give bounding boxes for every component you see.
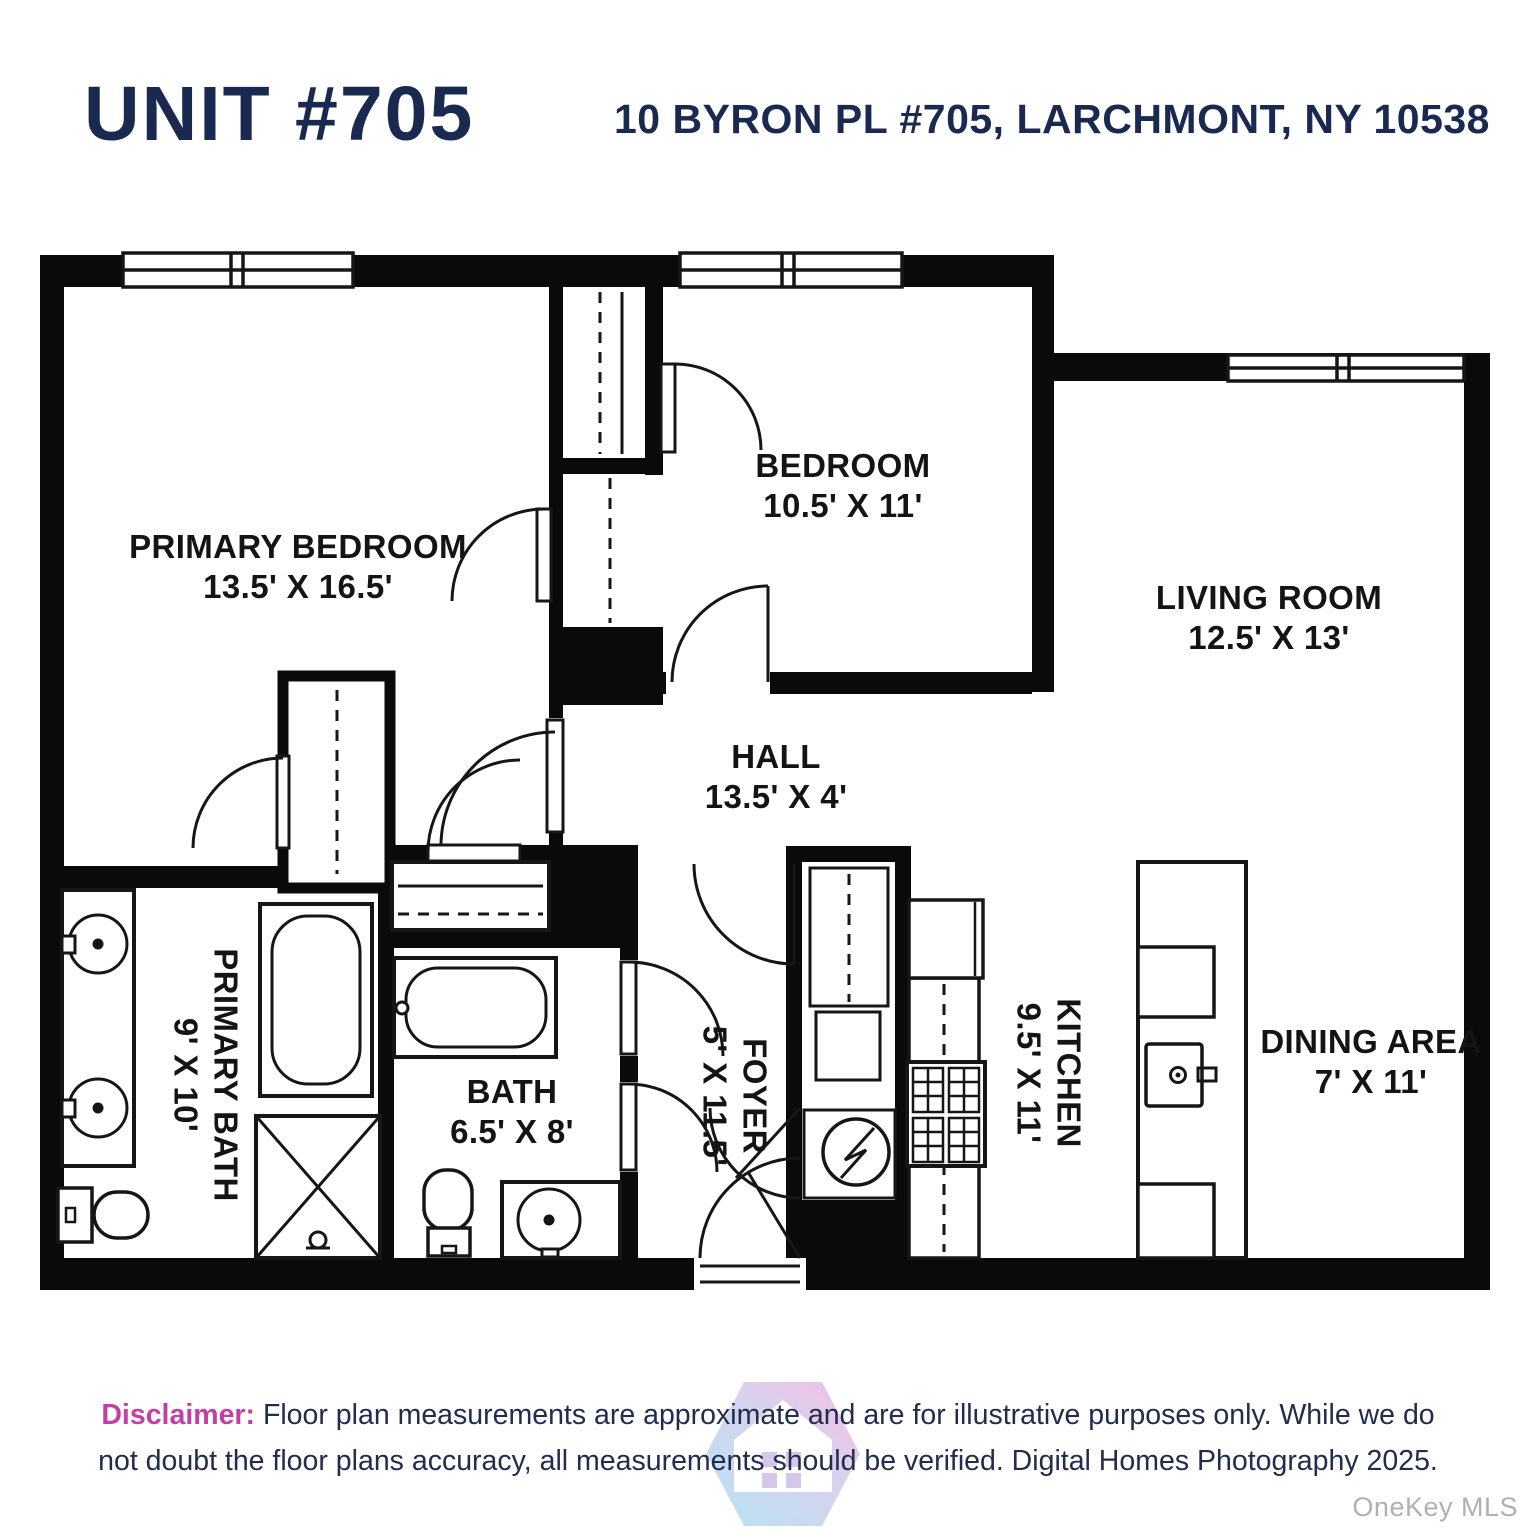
washer-dryer-icon <box>804 1110 895 1198</box>
window-bedroom <box>680 253 902 287</box>
pedestal-sink-icon <box>502 1182 620 1258</box>
bathtub-primary-icon <box>260 904 372 1096</box>
window-living-room <box>1228 355 1464 381</box>
closet-foyer <box>810 868 888 1080</box>
disclaimer-text: Disclaimer: Floor plan measurements are … <box>90 1392 1446 1484</box>
room-dims: 13.5' X 16.5' <box>129 567 467 607</box>
toilet-icon <box>424 1170 472 1256</box>
room-dims: 9.5' X 11' <box>1008 998 1048 1147</box>
disclaimer-label: Disclaimer: <box>101 1399 255 1431</box>
room-label-primary-bedroom: PRIMARY BEDROOM 13.5' X 16.5' <box>129 527 467 608</box>
room-name: BATH <box>450 1072 574 1112</box>
room-label-hall: HALL 13.5' X 4' <box>705 737 848 818</box>
disclaimer-body: Floor plan measurements are approximate … <box>98 1399 1438 1477</box>
room-dims: 6.5' X 8' <box>450 1112 574 1152</box>
room-label-foyer: FOYER 5' X 11.5' <box>694 1026 775 1167</box>
kitchen-island <box>1138 862 1246 1258</box>
refrigerator-icon <box>909 900 983 978</box>
room-dims: 10.5' X 11' <box>755 486 930 526</box>
room-label-living-room: LIVING ROOM 12.5' X 13' <box>1156 578 1382 659</box>
bathtub-icon <box>394 958 556 1057</box>
room-name: HALL <box>705 737 848 777</box>
closet-primary-2 <box>283 676 390 888</box>
room-label-kitchen: KITCHEN 9.5' X 11' <box>1008 998 1089 1147</box>
room-name: DINING AREA <box>1260 1022 1481 1062</box>
room-name: BEDROOM <box>755 446 930 486</box>
room-name: PRIMARY BEDROOM <box>129 527 467 567</box>
room-label-bath: BATH 6.5' X 8' <box>450 1072 574 1153</box>
room-label-bedroom: BEDROOM 10.5' X 11' <box>755 446 930 527</box>
shower-icon <box>256 1116 380 1258</box>
closet-linen <box>392 862 549 930</box>
room-dims: 13.5' X 4' <box>705 777 848 817</box>
room-name: FOYER <box>734 1026 774 1167</box>
closet-column <box>600 292 622 623</box>
vanity-double-sink-icon <box>62 890 134 1166</box>
toilet-primary-icon <box>58 1188 148 1242</box>
floor-plan-page: UNIT #705 10 BYRON PL #705, LARCHMONT, N… <box>0 0 1536 1536</box>
room-dims: 7' X 11' <box>1260 1062 1481 1102</box>
room-dims: 12.5' X 13' <box>1156 618 1382 658</box>
room-label-primary-bath: PRIMARY BATH 9' X 10' <box>165 948 246 1202</box>
room-dims: 9' X 10' <box>165 948 205 1202</box>
room-name: LIVING ROOM <box>1156 578 1382 618</box>
mls-watermark: OneKey MLS <box>1352 1492 1518 1523</box>
window-primary-bedroom <box>123 253 353 287</box>
room-label-dining-area: DINING AREA 7' X 11' <box>1260 1022 1481 1103</box>
room-dims: 5' X 11.5' <box>694 1026 734 1167</box>
stove-icon <box>907 1062 985 1166</box>
room-name: PRIMARY BATH <box>205 948 245 1202</box>
room-name: KITCHEN <box>1048 998 1088 1147</box>
